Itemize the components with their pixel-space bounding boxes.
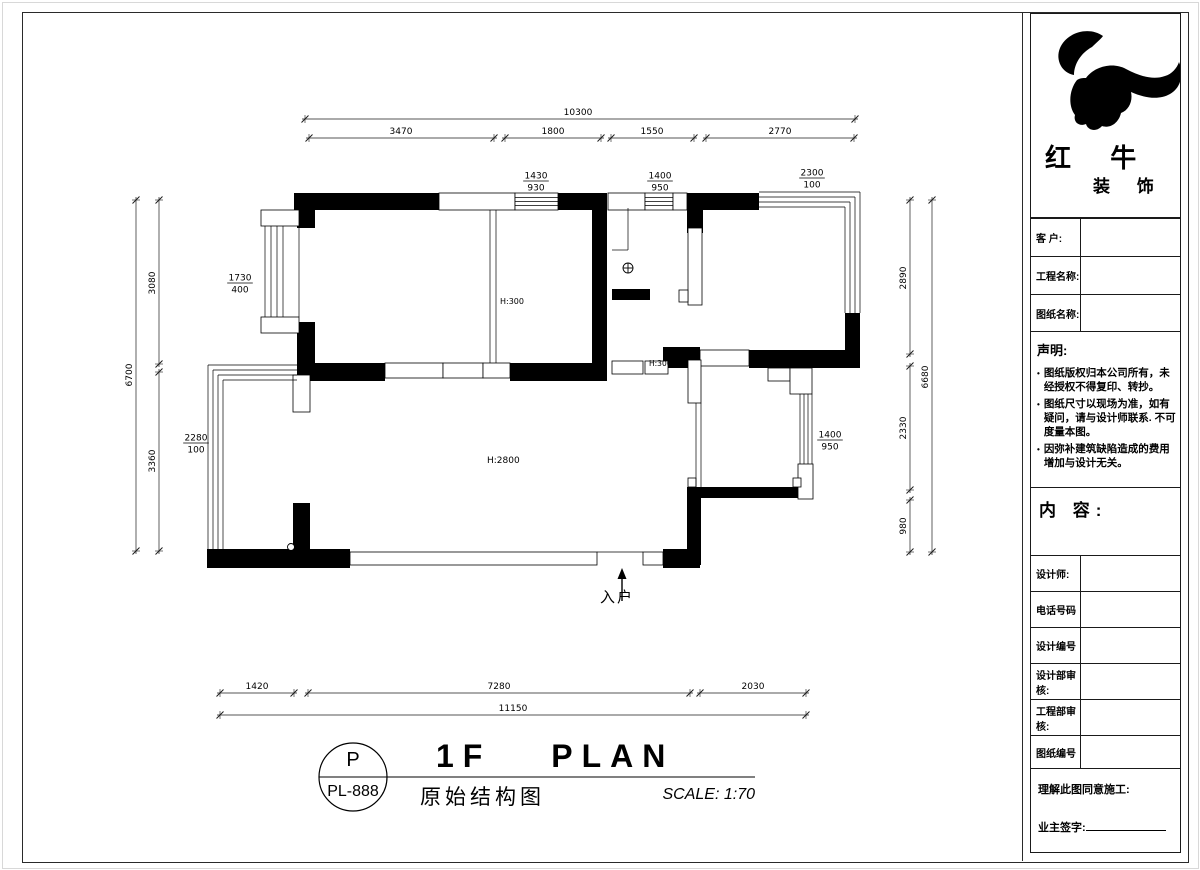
signature-box: 理解此图同意施工: 业主签字: xyxy=(1030,768,1181,853)
dimension-label: 7280 xyxy=(488,682,511,692)
wall-solid xyxy=(207,549,350,568)
window-dim-bottom: 400 xyxy=(231,286,248,296)
wall-outline xyxy=(673,193,687,210)
wall-solid xyxy=(845,313,860,368)
wall-outline xyxy=(688,228,702,305)
dimension-label: 3470 xyxy=(390,127,413,137)
wall-solid xyxy=(297,193,315,228)
window-dim-bottom: 950 xyxy=(821,443,838,453)
statement-box: 声明: 图纸版权归本公司所有，未经授权不得复印、转抄。 图纸尺寸以现场为准，如有… xyxy=(1030,331,1181,488)
signature-underline xyxy=(1086,820,1166,831)
wall-solid xyxy=(694,193,759,210)
wall-outline xyxy=(768,368,790,381)
window-dim-top: 1430 xyxy=(525,172,548,182)
window-dim-bottom: 100 xyxy=(187,446,204,456)
dimension-label: 3080 xyxy=(148,271,158,294)
dimension-label: 1420 xyxy=(246,682,269,692)
window-dim-bottom: 950 xyxy=(651,184,668,194)
symbol-circle xyxy=(288,544,295,551)
statement-bullet: 图纸尺寸以现场为准，如有疑问，请与设计师联系. 不可度量本图。 xyxy=(1035,398,1176,439)
logo-box: 红 牛 装 饰 xyxy=(1030,13,1181,218)
field-row-client: 客 户: xyxy=(1030,218,1181,257)
wall-outline xyxy=(439,193,515,210)
field-label: 电话号码 xyxy=(1031,592,1081,627)
wall-solid xyxy=(294,193,439,210)
field-label: 设计师: xyxy=(1031,556,1081,591)
wall-solid xyxy=(293,503,310,551)
scale-label: SCALE: 1:70 xyxy=(610,786,755,804)
title-english: 1F PLAN xyxy=(436,738,674,775)
wall-solid xyxy=(510,363,607,381)
wall-outline xyxy=(688,478,696,487)
field-row-drawing-name: 图纸名称: xyxy=(1030,294,1181,332)
dimension-label: 3360 xyxy=(148,449,158,472)
owner-signature-text: 业主签字: xyxy=(1038,822,1086,834)
wall-outline xyxy=(293,375,310,412)
window-dim-top: 2280 xyxy=(185,434,208,444)
window-dim-top: 2300 xyxy=(801,169,824,179)
wall-outline xyxy=(350,552,597,565)
wall-solid xyxy=(687,193,703,233)
wall-outline xyxy=(261,210,299,226)
title-chinese: 原始结构图 xyxy=(420,781,545,811)
wall-solid xyxy=(700,487,801,498)
window-dim-bottom: 100 xyxy=(803,181,820,191)
wall-solid xyxy=(663,549,700,568)
entry-label: 入户 xyxy=(600,586,634,607)
field-label: 图纸编号 xyxy=(1031,736,1081,768)
dimension-label: 6700 xyxy=(125,363,135,386)
wall-solid xyxy=(749,350,859,368)
window-dim-top: 1400 xyxy=(819,431,842,441)
plan-label: H:300 xyxy=(500,297,524,306)
field-row-design-dept-review: 设计部审核: xyxy=(1030,663,1181,700)
consent-text: 理解此图同意施工: xyxy=(1038,781,1180,797)
dimension-label: 980 xyxy=(899,517,909,534)
statement-bullet: 因弥补建筑缺陷造成的费用增加与设计无关。 xyxy=(1035,443,1176,470)
field-label: 设计部审核: xyxy=(1031,664,1081,699)
window-dim-top: 1400 xyxy=(649,172,672,182)
dimension-label: 6680 xyxy=(921,365,931,388)
wall-outline xyxy=(608,193,645,210)
wall-outline xyxy=(643,552,663,565)
dimension-label: 2030 xyxy=(742,682,765,692)
drawing-number: PL-888 xyxy=(318,783,388,801)
statement-title: 声明: xyxy=(1037,340,1178,359)
window-dim-bottom: 930 xyxy=(527,184,544,194)
brand-subname: 装 饰 xyxy=(1093,172,1165,197)
field-label: 客 户: xyxy=(1031,219,1081,256)
wall-outline xyxy=(261,317,299,333)
field-label: 设计编号 xyxy=(1031,628,1081,663)
field-row-project-name: 工程名称: xyxy=(1030,256,1181,295)
dimension-label: 11150 xyxy=(499,704,528,714)
wall-outline xyxy=(700,350,749,366)
wall-solid xyxy=(612,289,650,300)
entry-arrow-head xyxy=(618,568,627,579)
statement-bullet: 图纸版权归本公司所有，未经授权不得复印、转抄。 xyxy=(1035,367,1176,394)
wall-outline xyxy=(612,361,643,374)
owner-signature-label: 业主签字: xyxy=(1038,819,1180,835)
dimension-label: 1800 xyxy=(542,127,565,137)
field-row-designer: 设计师: xyxy=(1030,555,1181,592)
content-box: 内 容: xyxy=(1030,487,1181,556)
field-row-drawing-no: 图纸编号 xyxy=(1030,735,1181,769)
field-row-design-no: 设计编号 xyxy=(1030,627,1181,664)
plan-label: H:2800 xyxy=(487,456,520,466)
dimension-label: 2770 xyxy=(769,127,792,137)
wall-outline xyxy=(793,478,801,487)
dimension-label: 1550 xyxy=(641,127,664,137)
brand-name: 红 牛 xyxy=(1045,138,1152,175)
drawing-sheet: 1030034701800155027706700308033602890233… xyxy=(0,0,1200,870)
wall-outline xyxy=(790,368,812,394)
wall-outline xyxy=(443,363,483,378)
plan-label: H:300 xyxy=(649,359,672,368)
field-label: 工程名称: xyxy=(1031,257,1081,294)
wall-solid xyxy=(558,193,597,210)
brand-bull-logo-icon xyxy=(1031,22,1180,152)
dimension-label: 2330 xyxy=(899,416,909,439)
field-label: 工程部审核: xyxy=(1031,700,1081,735)
wall-outline xyxy=(483,363,510,378)
wall-outline xyxy=(679,290,688,302)
dimension-label: 10300 xyxy=(564,108,593,118)
window-dim-top: 1730 xyxy=(229,274,252,284)
wall-outline xyxy=(688,360,701,403)
field-row-phone: 电话号码 xyxy=(1030,591,1181,628)
wall-outline xyxy=(385,363,443,378)
dimension-label: 2890 xyxy=(899,266,909,289)
field-label: 图纸名称: xyxy=(1031,295,1081,331)
wall-solid xyxy=(592,193,607,381)
title-mark-letter: P xyxy=(336,749,370,772)
content-label: 内 容: xyxy=(1039,496,1180,521)
field-row-eng-dept-review: 工程部审核: xyxy=(1030,699,1181,736)
